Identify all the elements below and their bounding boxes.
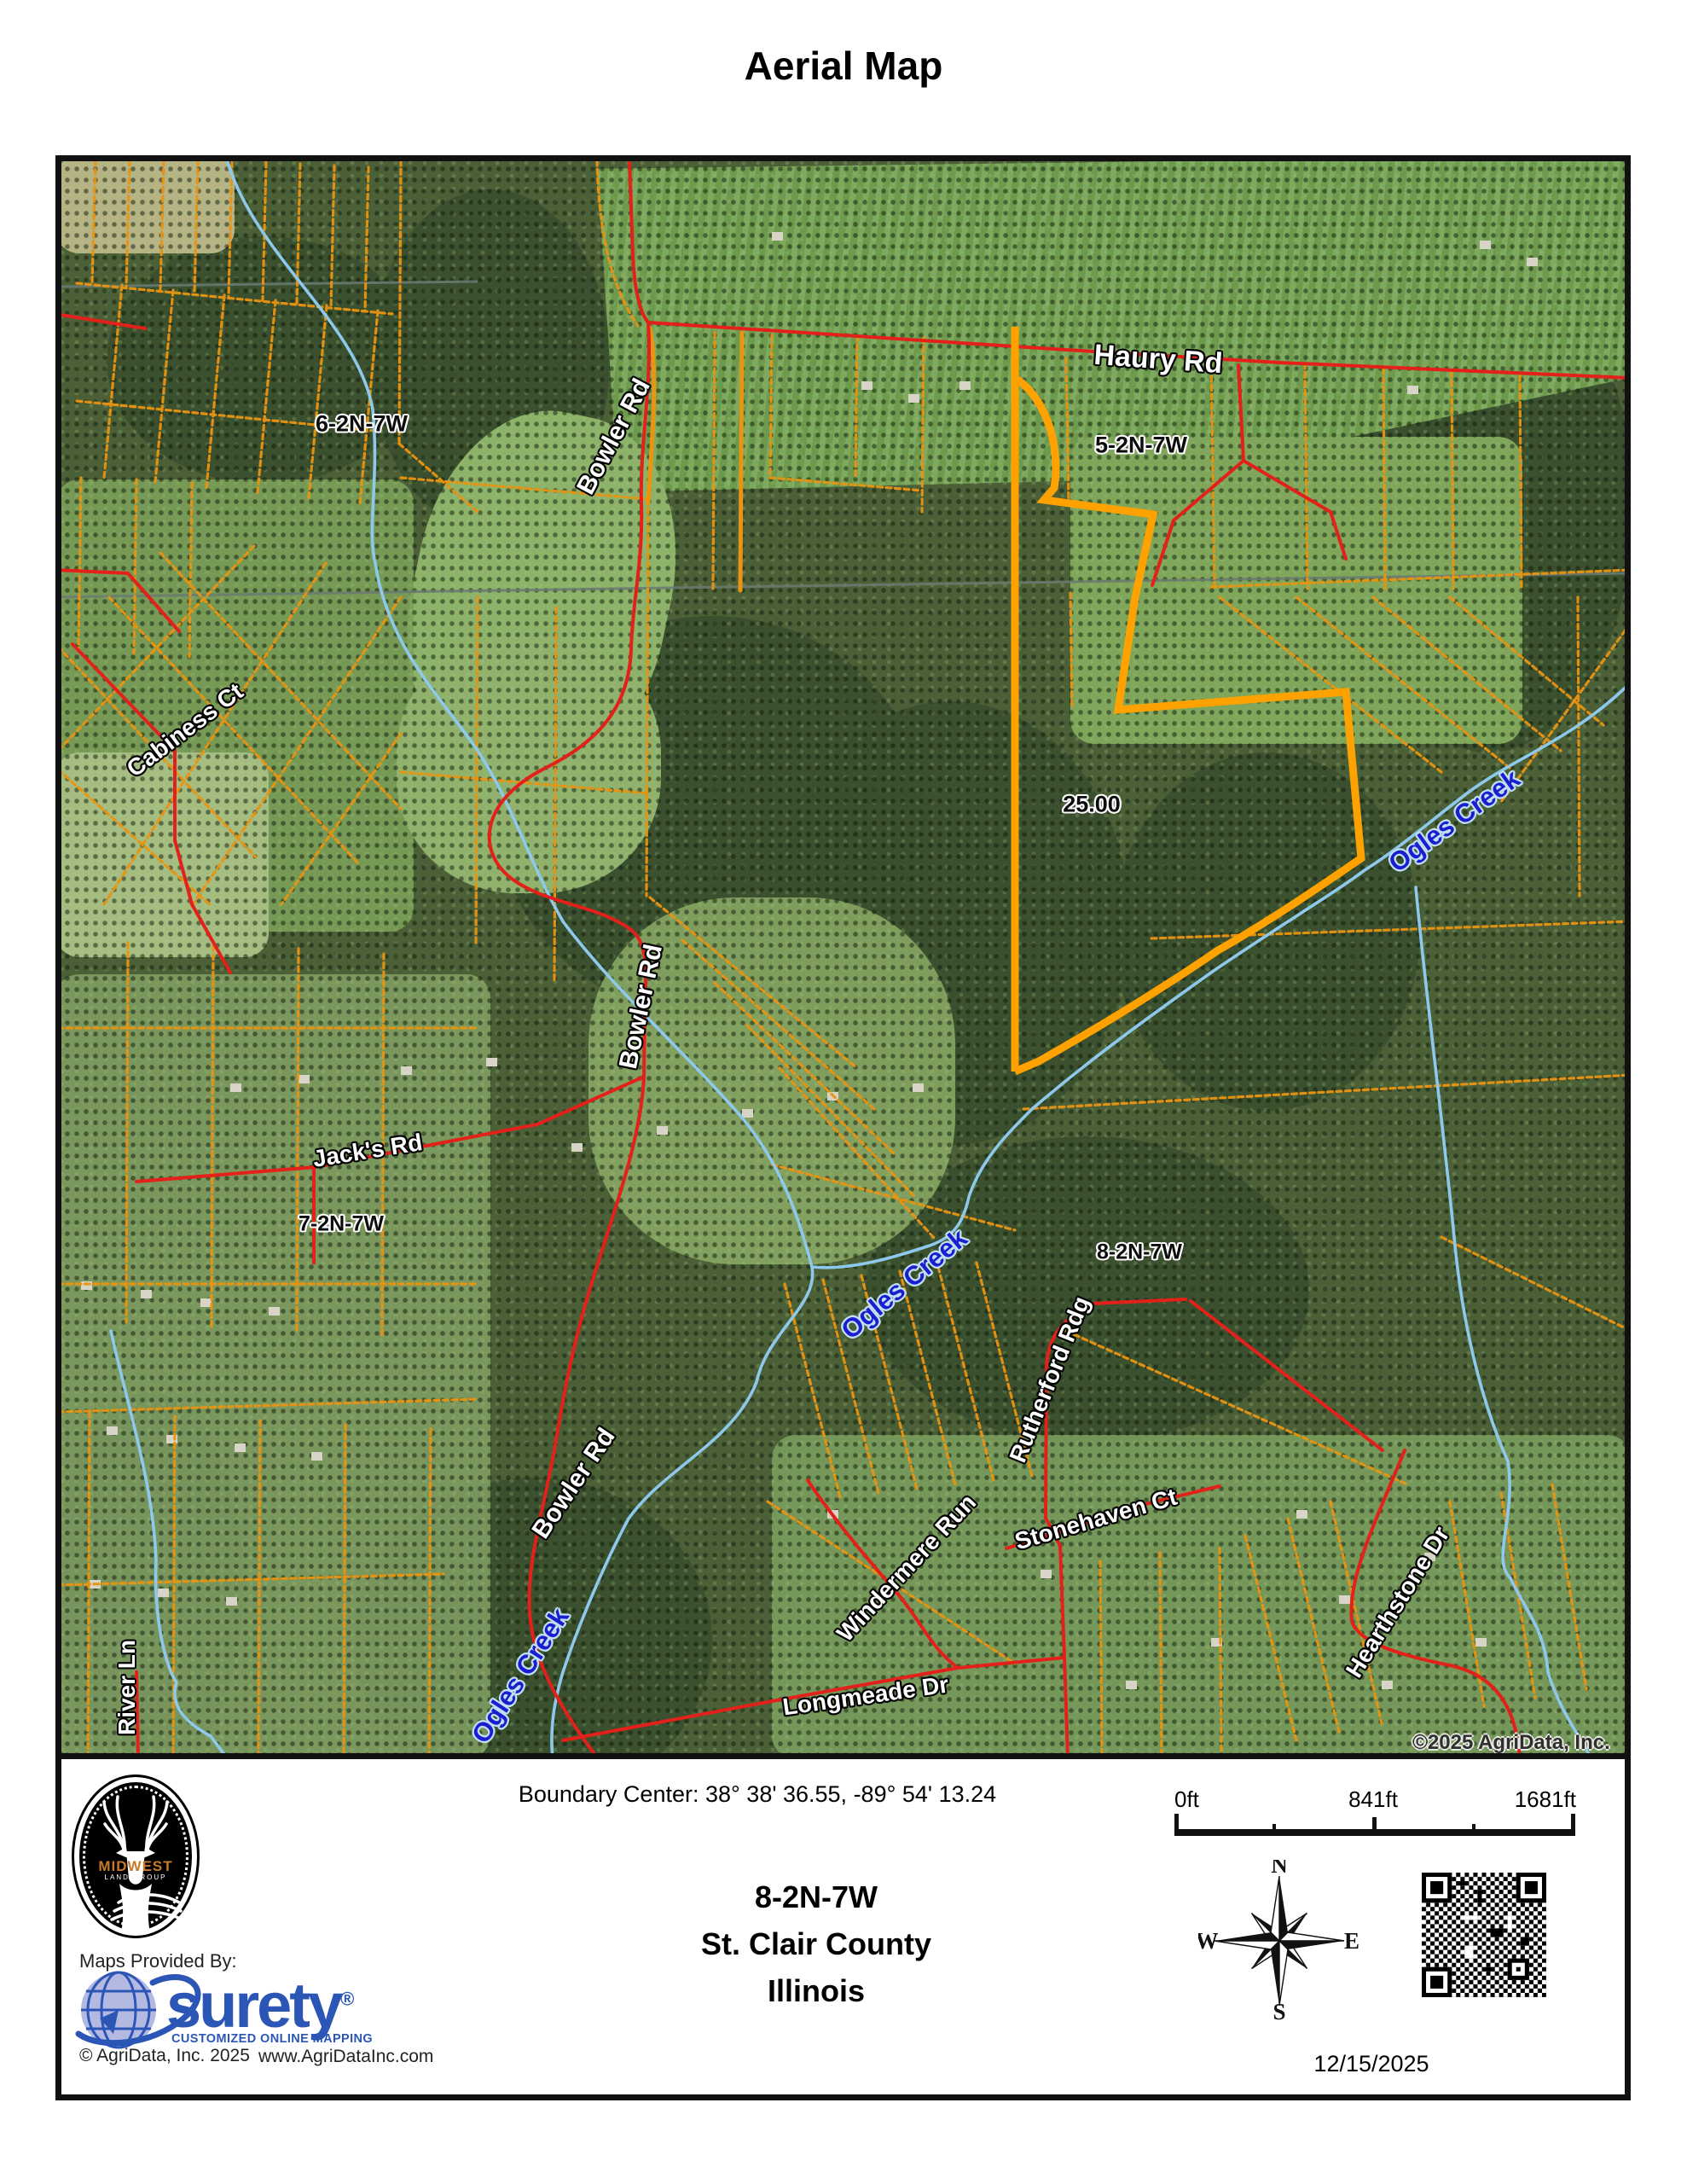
scale-label-end: 1681ft xyxy=(1515,1786,1576,1813)
surety-logo-text: surety® xyxy=(166,1969,354,2042)
parcel-lines-layer xyxy=(58,160,1631,1754)
map-vector-overlay xyxy=(55,155,1631,1759)
roads-layer xyxy=(55,158,1631,1759)
location-county: St. Clair County xyxy=(701,1920,931,1967)
boundary-center-coordinates: Boundary Center: 38° 38' 36.55, -89° 54'… xyxy=(519,1781,996,1808)
compass-rose: N W E S xyxy=(1198,1860,1360,2022)
surety-wordmark: surety xyxy=(166,1970,340,2041)
location-block: 8-2N-7W St. Clair County Illinois xyxy=(701,1873,931,2014)
section-roads-layer xyxy=(55,282,1631,597)
qr-code xyxy=(1422,1873,1546,1997)
section-label-7-2n-7w: 7-2N-7W xyxy=(299,1214,384,1235)
compass-n: N xyxy=(1271,1860,1288,1878)
section-label-8-2n-7w: 8-2N-7W xyxy=(1097,1242,1182,1263)
compass-e: E xyxy=(1344,1928,1359,1954)
scale-bar xyxy=(1174,1814,1575,1836)
orange-roads-layer xyxy=(648,328,742,590)
compass-s: S xyxy=(1272,1999,1285,2022)
deer-chest xyxy=(119,1884,152,1933)
logo-brand-subtitle: LAND GROUP xyxy=(72,1873,200,1881)
section-label-5-2n-7w: 5-2N-7W xyxy=(1095,434,1187,457)
compass-w: W xyxy=(1198,1928,1219,1954)
compass-star xyxy=(1215,1876,1344,2006)
road-label-river-ln: River Ln xyxy=(115,1640,139,1735)
creeks-layer xyxy=(111,162,1631,1759)
map-footer: MIDWEST LAND GROUP Boundary Center: 38° … xyxy=(55,1759,1631,2100)
page-title: Aerial Map xyxy=(0,43,1687,89)
section-label-6-2n-7w: 6-2N-7W xyxy=(316,413,408,436)
location-state: Illinois xyxy=(701,1967,931,2014)
surety-tagline: CUSTOMIZED ONLINE MAPPING xyxy=(171,2032,373,2046)
midwest-land-group-logo: MIDWEST LAND GROUP xyxy=(72,1774,200,1938)
scale-label-mid: 841ft xyxy=(1348,1786,1398,1813)
parcel-acreage-label: 25.00 xyxy=(1063,793,1121,816)
map-date: 12/15/2025 xyxy=(1286,2051,1457,2077)
agridata-website: www.AgriDataInc.com xyxy=(258,2047,433,2067)
location-trs: 8-2N-7W xyxy=(701,1873,931,1920)
scale-label-start: 0ft xyxy=(1174,1786,1199,1813)
aerial-map: Haury Rd 6-2N-7W Bowler Rd 5-2N-7W Cabin… xyxy=(55,155,1631,1759)
deer-icon xyxy=(72,1774,200,1938)
agridata-copyright: © AgriData, Inc. 2025 xyxy=(79,2046,250,2066)
map-copyright-watermark: ©2025 AgriData, Inc. xyxy=(1412,1733,1610,1753)
logo-brand-name: MIDWEST xyxy=(72,1858,200,1875)
registered-mark: ® xyxy=(340,1988,354,2009)
aerial-map-report: Aerial Map xyxy=(0,0,1687,2184)
